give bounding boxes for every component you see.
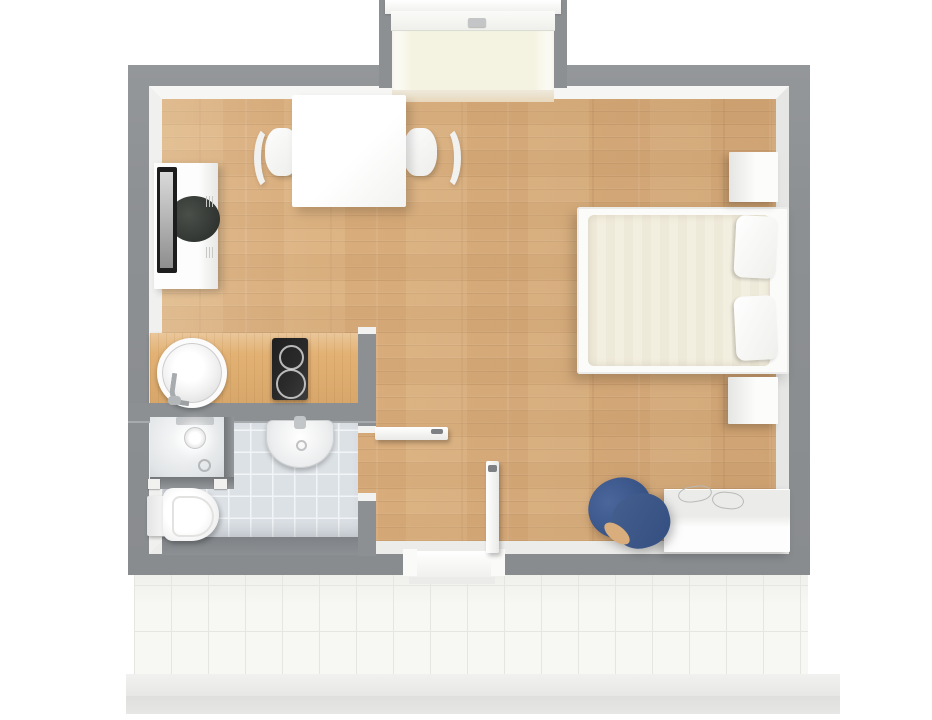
window-handle-icon [468,18,486,27]
shower [150,417,236,491]
armchair [588,472,676,552]
nightstand-top [729,152,778,202]
wall-end-cap [358,493,376,501]
shower-glass-hinge [148,479,160,489]
door-handle-icon [488,465,497,472]
drain-icon [198,459,211,472]
pillow [733,215,778,279]
burner-icon [276,369,306,399]
door-jamb [491,549,505,576]
terrace-ledge-top [126,674,840,696]
door-handle-icon [431,429,443,434]
shower-head-icon [184,427,206,449]
shower-floor [150,417,226,479]
toilet [163,488,219,541]
shower-glass-hinge [214,479,227,489]
shower-glass-panel [224,417,234,483]
bathroom-east-wall [358,493,376,556]
tv-cabinet [154,163,218,289]
toilet-seat [172,496,214,537]
window-sill [392,26,554,90]
chair-backrest [254,125,285,191]
kitchen-faucet-base [168,396,181,405]
door-jamb [403,549,417,576]
wall-end-cap [358,327,376,334]
entry-step [409,577,495,584]
burner-icon [279,345,304,370]
cabinet-handle-icon [206,247,214,258]
terrace-ledge-face [126,696,840,714]
front-door [486,461,499,553]
floor-plan-canvas [0,0,932,720]
cabinet-handle-icon [206,196,214,207]
tv-screen [160,172,173,268]
bathroom-faucet-icon [294,416,306,429]
dining-table [292,95,406,207]
tv [157,167,177,273]
nightstand-bottom [728,377,778,424]
entry-threshold [404,551,500,577]
wall-end-cap [358,426,376,433]
chair-backrest [430,125,461,191]
drain-icon [296,440,307,451]
pillow [733,295,778,361]
shower-arm-icon [176,417,214,425]
